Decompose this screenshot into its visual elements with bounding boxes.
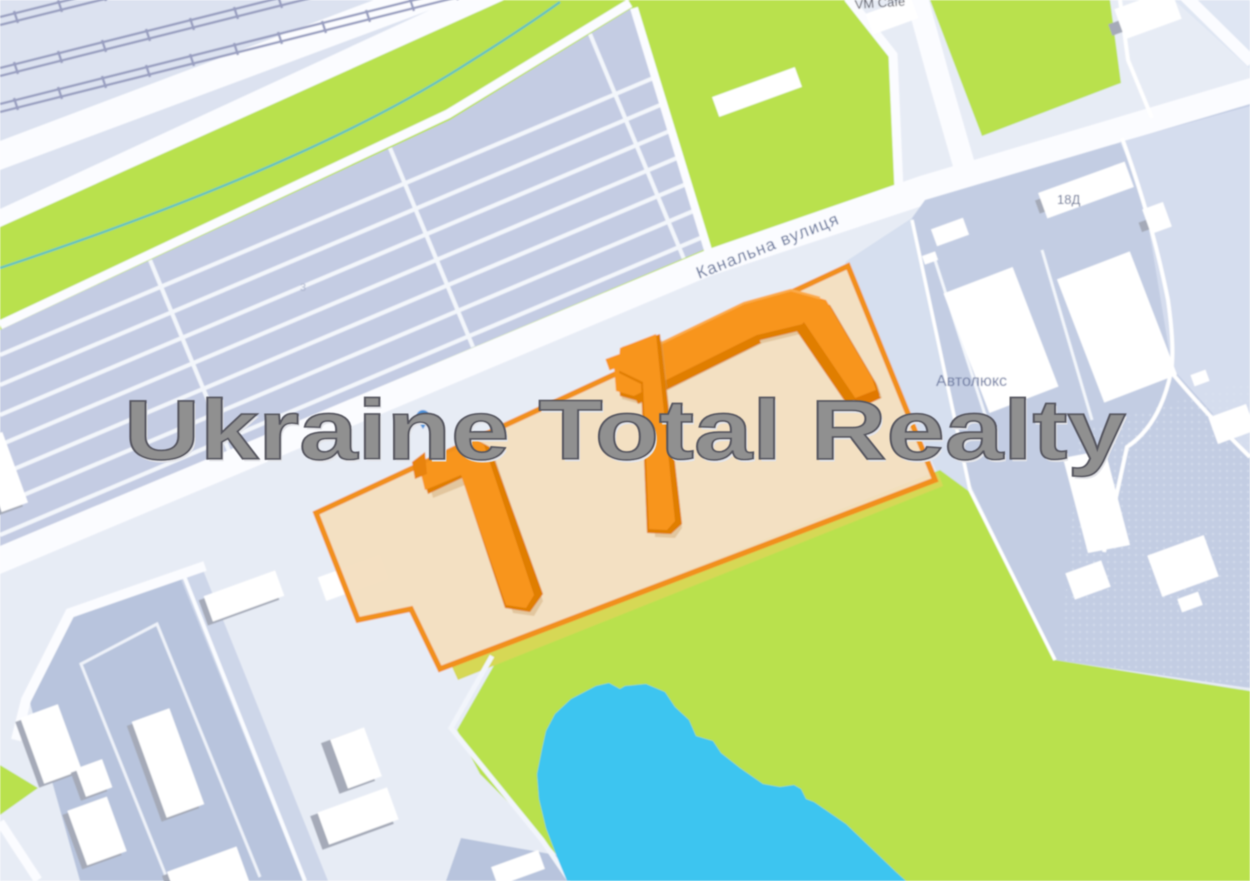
svg-text:3: 3 [300, 282, 306, 294]
svg-text:Ukraine Total Realty: Ukraine Total Realty [124, 384, 1126, 478]
svg-text:18Д: 18Д [1057, 192, 1080, 207]
